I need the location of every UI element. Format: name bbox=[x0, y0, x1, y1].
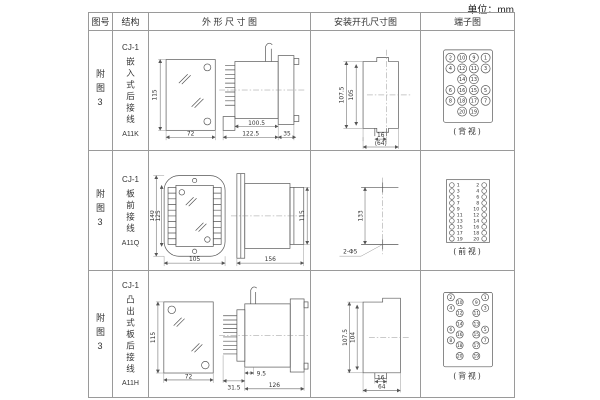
terminal-number: 7 bbox=[456, 200, 459, 206]
mounting-cell-row1: 107.5 105 16 (64) bbox=[310, 30, 420, 150]
outline-drawing-row1: 115 72 100.5 122.5 35 bbox=[150, 32, 310, 150]
terminal-circle bbox=[481, 212, 486, 217]
terminal-circle bbox=[449, 212, 454, 217]
header-structure: 结构 bbox=[112, 12, 148, 30]
terminal-number: 18 bbox=[456, 343, 462, 349]
terminal-number: 19 bbox=[456, 236, 462, 242]
dim-label: 133 bbox=[358, 210, 364, 221]
dim-label: 31.5 bbox=[227, 385, 240, 391]
terminal-number: 6 bbox=[476, 194, 479, 200]
dim-label: 156 bbox=[264, 257, 275, 263]
terminal-number: 6 bbox=[449, 327, 452, 333]
dim-label: 107.5 bbox=[342, 329, 348, 346]
terminal-number: 11 bbox=[470, 66, 476, 72]
terminal-number: 8 bbox=[448, 98, 451, 104]
terminal-number: 13 bbox=[473, 321, 479, 327]
terminal-number: 7 bbox=[484, 98, 487, 104]
terminal-number: 12 bbox=[459, 66, 465, 72]
terminal-number: 20 bbox=[459, 109, 465, 115]
terminal-grid-row1: 2109141211314136161558181772019 bbox=[445, 53, 489, 116]
mounting-cell-row3: 107.5 104 16 64 bbox=[310, 270, 420, 397]
fig-no-label: 附图3 bbox=[94, 313, 107, 356]
terminal-number: 2 bbox=[476, 182, 479, 188]
terminal-number: 20 bbox=[456, 354, 462, 360]
terminal-number: 15 bbox=[470, 87, 476, 93]
terminal-number: 5 bbox=[484, 87, 487, 93]
terminal-number: 13 bbox=[470, 77, 476, 83]
terminal-number: 10 bbox=[473, 206, 479, 212]
terminal-circle bbox=[449, 224, 454, 229]
mounting-drawing-row3: 107.5 104 16 64 bbox=[312, 272, 420, 396]
terminal-circle bbox=[449, 182, 454, 187]
terminal-number: 17 bbox=[470, 98, 476, 104]
terminal-number: 19 bbox=[473, 354, 479, 360]
header-fig-no: 图号 bbox=[88, 12, 112, 30]
terminal-number: 9 bbox=[474, 300, 477, 306]
dim-label: 16 bbox=[376, 133, 384, 139]
terminal-circle bbox=[481, 206, 486, 211]
terminal-number: 5 bbox=[483, 327, 486, 333]
terminal-number: 8 bbox=[449, 338, 452, 344]
terminal-number: 6 bbox=[448, 87, 451, 93]
header-mounting-dims: 安装开孔尺寸图 bbox=[310, 12, 420, 30]
terminal-circle bbox=[449, 200, 454, 205]
structure-row2: CJ-1 板前接线 A11Q bbox=[112, 150, 148, 270]
terminal-number: 4 bbox=[448, 66, 451, 72]
outline-cell-row2: 140 125 105 156 115 bbox=[148, 150, 310, 270]
outline-cell-row3: 115 72 9.5 31.5 126 bbox=[148, 270, 310, 397]
terminal-grid-row2: 1357911131517192468101214161820 bbox=[449, 182, 486, 242]
terminal-number: 14 bbox=[456, 321, 462, 327]
terminal-number: 12 bbox=[473, 212, 479, 218]
dim-label: 100.5 bbox=[248, 120, 265, 126]
outline-cell-row1: 115 72 100.5 122.5 35 bbox=[148, 30, 310, 150]
fig-no-label: 附图3 bbox=[94, 69, 107, 112]
terminal-grid-row3: 2468101214161820911131517191357 bbox=[447, 294, 488, 360]
terminal-circle bbox=[481, 188, 486, 193]
terminal-number: 3 bbox=[484, 66, 487, 72]
terminal-number: 1 bbox=[456, 182, 459, 188]
terminal-cell-row3: 2468101214161820911131517191357 (背视) bbox=[420, 270, 514, 397]
terminal-number: 19 bbox=[470, 109, 476, 115]
terminal-circle bbox=[481, 218, 486, 223]
terminal-number: 14 bbox=[473, 218, 479, 224]
view-label: (背视) bbox=[453, 126, 483, 136]
terminal-number: 4 bbox=[476, 188, 479, 194]
terminal-number: 15 bbox=[473, 332, 479, 338]
terminal-number: 5 bbox=[456, 194, 459, 200]
dim-label: 9.5 bbox=[256, 371, 266, 377]
dim-label: 115 bbox=[300, 210, 306, 221]
terminal-number: 11 bbox=[456, 212, 462, 218]
terminal-number: 2 bbox=[449, 295, 452, 301]
terminal-number: 20 bbox=[473, 236, 479, 242]
dim-label: 16 bbox=[376, 376, 384, 382]
mounting-drawing-row2: 133 2-Φ5 bbox=[312, 152, 420, 270]
dim-label: (64) bbox=[374, 141, 386, 147]
terminal-number: 8 bbox=[476, 200, 479, 206]
terminal-number: 14 bbox=[459, 77, 465, 83]
terminal-circle bbox=[481, 194, 486, 199]
dim-label: 105 bbox=[349, 89, 355, 100]
terminal-number: 16 bbox=[473, 224, 479, 230]
model-label: CJ-1 bbox=[122, 281, 139, 290]
terminal-number: 3 bbox=[483, 306, 486, 312]
structure-type-label: 嵌入式后接线 bbox=[125, 57, 137, 126]
terminal-number: 1 bbox=[484, 55, 487, 61]
terminal-number: 9 bbox=[456, 206, 459, 212]
terminal-number: 13 bbox=[456, 218, 462, 224]
terminal-cell-row1: 2109141211314136161558181772019 (背视) bbox=[420, 30, 514, 150]
terminal-circle bbox=[481, 200, 486, 205]
structure-code-label: A11K bbox=[122, 131, 139, 138]
terminal-drawing-row3: 2468101214161820911131517191357 (背视) bbox=[422, 272, 514, 396]
fig-no-row1: 附图3 bbox=[88, 30, 112, 150]
fig-no-row3: 附图3 bbox=[88, 270, 112, 397]
dim-label: 107.5 bbox=[339, 86, 345, 103]
model-label: CJ-1 bbox=[122, 175, 139, 184]
dim-label: 104 bbox=[350, 332, 356, 343]
header-terminal-diagram: 端子图 bbox=[420, 12, 514, 30]
fig-no-row2: 附图3 bbox=[88, 150, 112, 270]
terminal-number: 17 bbox=[473, 343, 479, 349]
dim-label: 122.5 bbox=[242, 131, 259, 137]
terminal-number: 1 bbox=[483, 295, 486, 301]
structure-type-label: 凸出式板后接线 bbox=[125, 295, 137, 376]
terminal-number: 7 bbox=[483, 338, 486, 344]
terminal-number: 18 bbox=[473, 230, 479, 236]
terminal-cell-row2: 1357911131517192468101214161820 (前视) bbox=[420, 150, 514, 270]
terminal-number: 10 bbox=[459, 55, 465, 61]
terminal-drawing-row2: 1357911131517192468101214161820 (前视) bbox=[422, 152, 514, 270]
terminal-circle bbox=[481, 182, 486, 187]
dim-label: 126 bbox=[268, 383, 280, 389]
terminal-number: 17 bbox=[456, 230, 462, 236]
spec-table: 图号 结构 外 形 尺 寸 图 安装开孔尺寸图 端子图 附图3 CJ-1 嵌入式… bbox=[88, 12, 515, 398]
terminal-circle bbox=[481, 236, 486, 241]
fig-no-label: 附图3 bbox=[94, 189, 107, 232]
terminal-circle bbox=[449, 236, 454, 241]
terminal-circle bbox=[449, 230, 454, 235]
terminal-number: 2 bbox=[448, 55, 451, 61]
dim-label: 115 bbox=[150, 332, 156, 344]
terminal-circle bbox=[449, 194, 454, 199]
terminal-circle bbox=[449, 188, 454, 193]
terminal-number: 18 bbox=[459, 98, 465, 104]
outline-drawing-row2: 140 125 105 156 115 bbox=[150, 152, 310, 270]
terminal-circle bbox=[481, 230, 486, 235]
structure-code-label: A11Q bbox=[122, 240, 139, 247]
terminal-number: 3 bbox=[456, 188, 459, 194]
terminal-number: 12 bbox=[456, 311, 462, 317]
terminal-number: 10 bbox=[456, 300, 462, 306]
dim-label: 115 bbox=[152, 89, 158, 100]
mounting-cell-row2: 133 2-Φ5 bbox=[310, 150, 420, 270]
terminal-drawing-row1: 2109141211314136161558181772019 (背视) bbox=[422, 32, 514, 150]
dim-label: 72 bbox=[184, 374, 192, 380]
terminal-number: 16 bbox=[459, 87, 465, 93]
terminal-number: 16 bbox=[456, 332, 462, 338]
dim-label: 35 bbox=[283, 131, 291, 137]
terminal-circle bbox=[449, 206, 454, 211]
terminal-number: 15 bbox=[456, 224, 462, 230]
mounting-drawing-row1: 107.5 105 16 (64) bbox=[312, 32, 420, 150]
view-label: (背视) bbox=[453, 371, 483, 381]
structure-code-label: A11H bbox=[122, 380, 139, 387]
dim-label: 125 bbox=[155, 210, 161, 221]
header-outline-dims: 外 形 尺 寸 图 bbox=[148, 12, 310, 30]
terminal-number: 4 bbox=[449, 306, 452, 312]
view-label: (前视) bbox=[453, 246, 483, 256]
dim-label: 72 bbox=[186, 131, 194, 137]
dim-label: 64 bbox=[377, 384, 385, 390]
structure-row1: CJ-1 嵌入式后接线 A11K bbox=[112, 30, 148, 150]
hole-callout-label: 2-Φ5 bbox=[343, 249, 357, 255]
structure-type-label: 板前接线 bbox=[125, 189, 137, 235]
structure-row3: CJ-1 凸出式板后接线 A11H bbox=[112, 270, 148, 397]
dim-label: 105 bbox=[188, 257, 199, 263]
terminal-circle bbox=[449, 218, 454, 223]
terminal-number: 9 bbox=[472, 55, 475, 61]
outline-drawing-row3: 115 72 9.5 31.5 126 bbox=[150, 272, 310, 396]
terminal-number: 11 bbox=[473, 311, 479, 317]
terminal-circle bbox=[481, 224, 486, 229]
model-label: CJ-1 bbox=[122, 43, 139, 52]
